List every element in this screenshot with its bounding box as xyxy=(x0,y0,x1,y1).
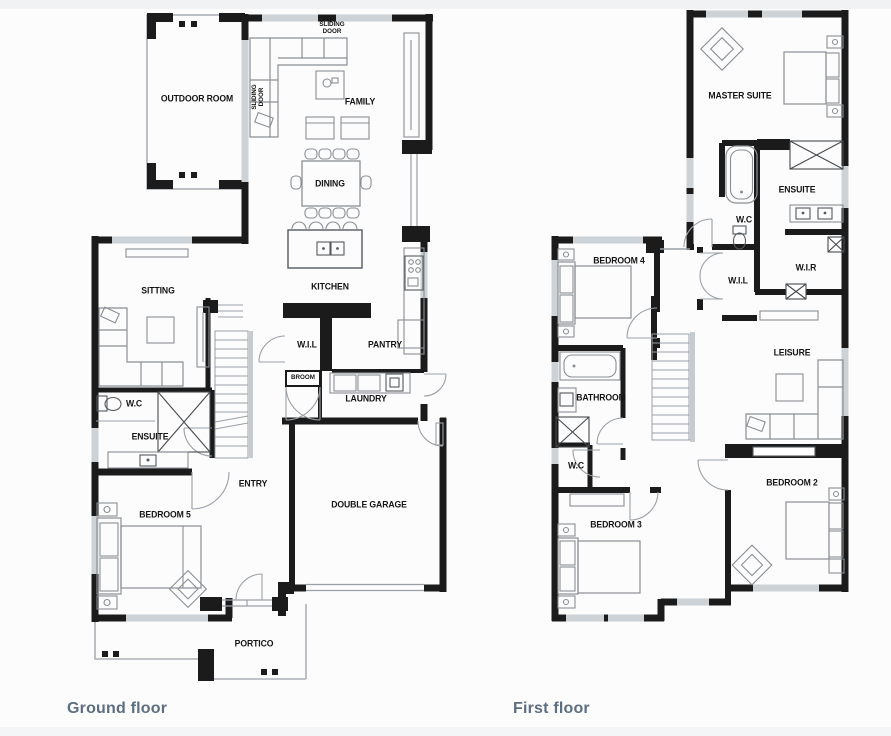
room-label-outdoor-room: OUTDOOR ROOM xyxy=(161,95,233,104)
ground-floor-caption: Ground floor xyxy=(67,700,167,718)
room-label-pantry: PANTRY xyxy=(368,341,402,350)
ground-furniture xyxy=(96,33,424,609)
floorplan-canvas: OUTDOOR ROOM SLIDING DOOR FAMILY SLIDING… xyxy=(0,0,891,736)
first-floor-caption: First floor xyxy=(513,700,590,718)
room-label-bedroom3: BEDROOM 3 xyxy=(590,521,641,530)
room-label-bathroom: BATHROOM xyxy=(576,394,625,403)
room-label-portico: PORTICO xyxy=(235,640,274,649)
room-label-sitting: SITTING xyxy=(141,287,174,296)
room-label-double-garage: DOUBLE GARAGE xyxy=(331,501,407,510)
room-label-wc-lower: W.C xyxy=(568,462,584,471)
room-label-family: FAMILY xyxy=(345,98,375,107)
room-label-dining: DINING xyxy=(315,180,345,189)
room-label-bedroom4: BEDROOM 4 xyxy=(593,257,644,266)
room-label-bedroom2: BEDROOM 2 xyxy=(766,479,817,488)
room-label-entry: ENTRY xyxy=(239,480,267,489)
room-label-wc-upper: W.C xyxy=(736,216,752,225)
first-stairs xyxy=(652,332,695,442)
room-label-ensuite-first: ENSUITE xyxy=(779,186,816,195)
room-label-master-suite: MASTER SUITE xyxy=(708,92,771,101)
ground-walls xyxy=(92,14,446,622)
room-label-wil-ground: W.I.L xyxy=(297,341,317,350)
room-label-broom: BROOM xyxy=(291,375,315,382)
annotation-sliding-door-side: SLIDING DOOR xyxy=(251,81,265,114)
first-floor-drawing xyxy=(552,10,849,622)
room-label-wir: W.I.R xyxy=(796,264,817,273)
room-label-wil-first: W.I.L xyxy=(728,277,748,286)
floor-plan-drawing xyxy=(0,0,891,736)
room-label-kitchen: KITCHEN xyxy=(311,283,349,292)
room-label-leisure: LEISURE xyxy=(774,349,811,358)
room-label-laundry: LAUNDRY xyxy=(345,395,386,404)
room-label-ensuite-ground: ENSUITE xyxy=(132,433,169,442)
room-label-bedroom5: BEDROOM 5 xyxy=(139,511,190,520)
first-windows xyxy=(552,11,849,622)
ground-stairs xyxy=(215,305,253,458)
room-label-wc-ground: W.C xyxy=(126,400,142,409)
annotation-sliding-door-top: SLIDING DOOR xyxy=(316,21,349,35)
